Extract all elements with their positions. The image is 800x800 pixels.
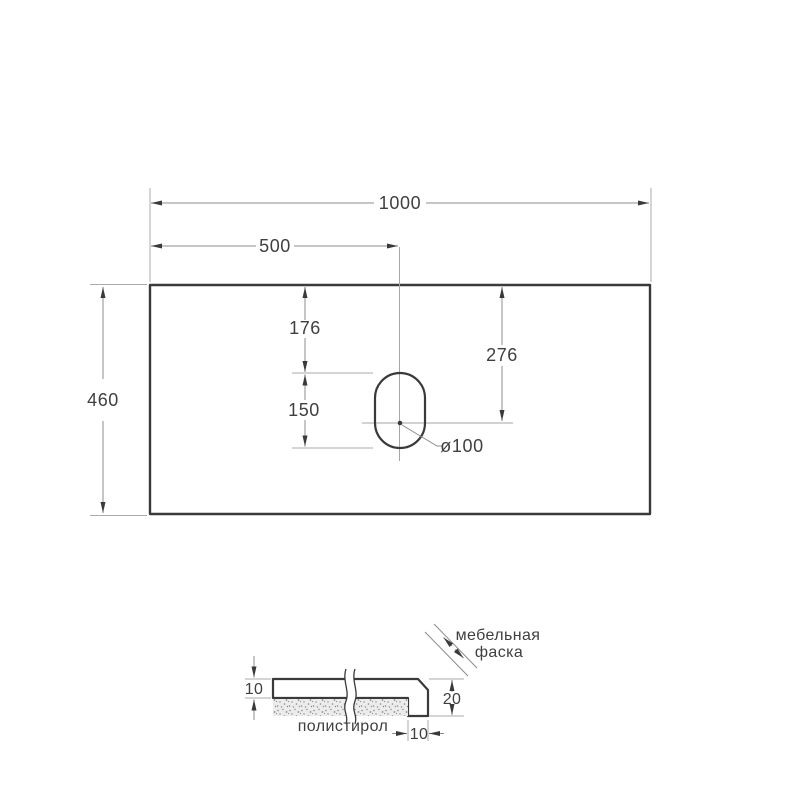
- hole-diameter-callout: ø100: [402, 425, 484, 456]
- technical-drawing: 1000 500 460 176 150: [0, 0, 800, 800]
- dimension-hole-top-offset: 176: [289, 287, 321, 372]
- dimension-width: 1000: [151, 193, 649, 213]
- section-view: 10 20 10 мебельная фаска полистирол: [245, 624, 541, 743]
- section-polystyrene-layer: [273, 699, 408, 716]
- dimension-depth: 460: [87, 287, 119, 513]
- dim-top-thickness-label: 10: [245, 681, 264, 698]
- polystyrene-label: полистирол: [298, 718, 389, 735]
- dim-edge-width-label: 10: [410, 726, 429, 743]
- extension-lines: [90, 188, 651, 516]
- chamfer-label-line1: мебельная: [456, 627, 541, 644]
- dim-hole-len-label: 150: [288, 400, 320, 420]
- main-top-view: 1000 500 460 176 150: [87, 188, 651, 516]
- chamfer-callout: мебельная фаска: [425, 624, 540, 676]
- hole-diameter-label: ø100: [440, 436, 483, 456]
- dim-center-top-label: 276: [486, 345, 518, 365]
- dim-depth-label: 460: [87, 390, 119, 410]
- dim-edge-height-label: 20: [443, 691, 462, 708]
- dimension-hole-center-from-top: 276: [486, 287, 518, 421]
- dimension-hole-slot-length: 150: [288, 375, 320, 447]
- hole-center-point: [398, 421, 403, 426]
- dim-center-label: 500: [259, 236, 291, 256]
- drawing-canvas: 1000 500 460 176 150: [0, 0, 800, 800]
- dim-width-label: 1000: [379, 193, 421, 213]
- dim-hole-top-label: 176: [289, 318, 321, 338]
- section-break-lines: [345, 669, 356, 724]
- dimension-edge-height: 20: [443, 680, 462, 715]
- chamfer-label-line2: фаска: [475, 644, 523, 661]
- dimension-top-thickness: 10: [245, 656, 264, 720]
- dimension-edge-width: 10: [392, 726, 444, 743]
- dimension-hole-center-x: 500: [151, 236, 398, 256]
